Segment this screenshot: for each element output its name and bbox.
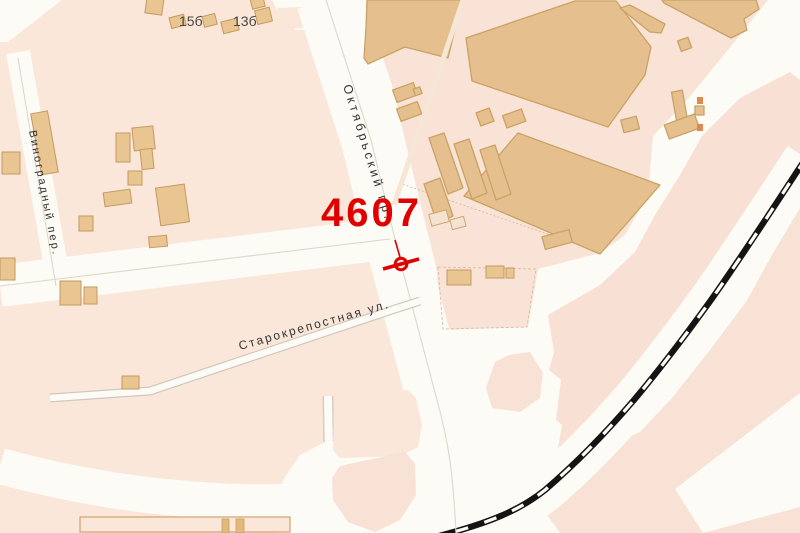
svg-text:15б: 15б	[179, 13, 203, 29]
svg-text:4607: 4607	[321, 191, 422, 235]
svg-text:13б: 13б	[233, 13, 257, 29]
